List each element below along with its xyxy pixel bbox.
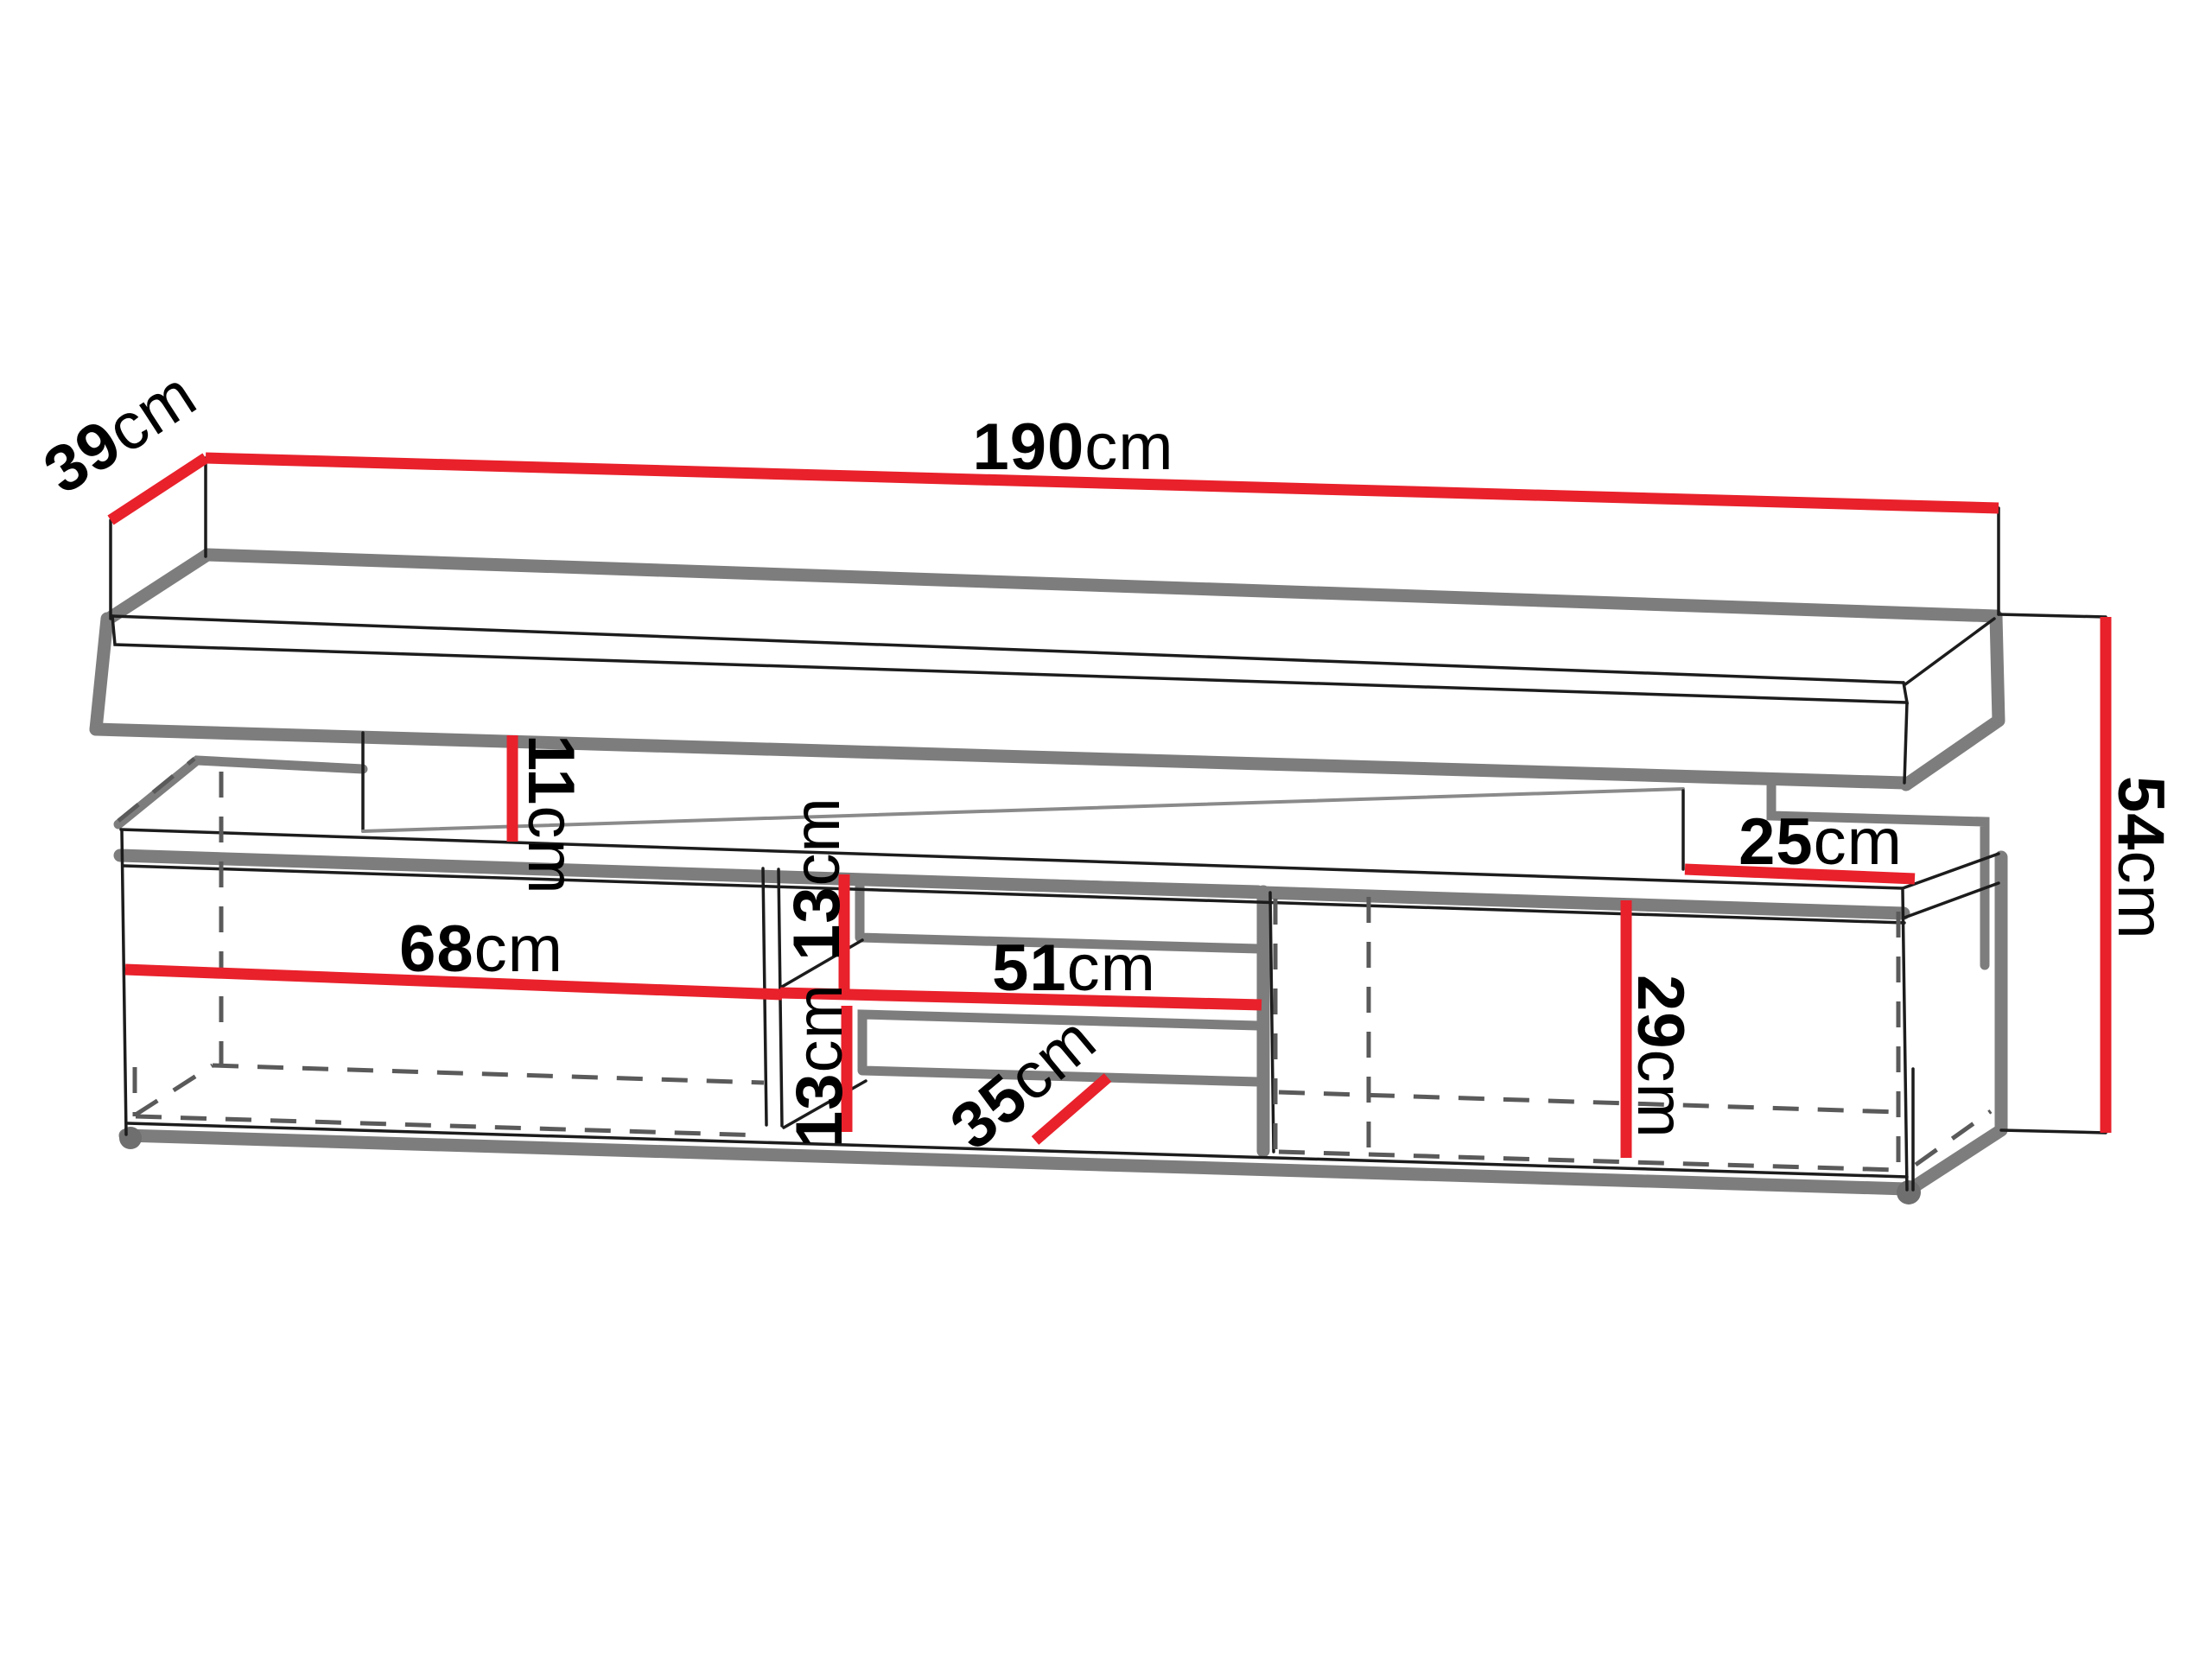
top-unit-back-edge <box>207 555 1996 616</box>
technical-drawing-page: 190cm 39cm 11cm 54cm 25cm 68cm 13cm 13cm… <box>0 0 2212 1659</box>
right-divider-front-edge <box>1270 893 1274 1152</box>
top-unit-right-face-front-edge <box>1904 702 1907 783</box>
top-unit-left-edge <box>96 619 107 729</box>
top-unit-top-left-edge <box>111 555 207 617</box>
hidden-right-bottom-back-edge <box>1279 1092 1897 1112</box>
hidden-left-bottom-diagonal <box>136 1065 213 1115</box>
cabinet-left-front-edge <box>122 831 126 1135</box>
label-cabinet-top-depth: 25cm <box>1738 805 1903 879</box>
label-recess-height: 11cm <box>514 734 588 895</box>
label-shelf-depth: 39cm <box>31 357 209 508</box>
label-niche-depth: 35cm <box>937 1002 1109 1164</box>
label-right-compartment-height: 29cm <box>1624 975 1697 1139</box>
label-total-width: 190cm <box>972 410 1173 484</box>
furniture-dimension-diagram: 190cm 39cm 11cm 54cm 25cm 68cm 13cm 13cm… <box>0 0 2212 1659</box>
top-unit-bottom-edge <box>96 729 1904 783</box>
hidden-left-bottom-back-edge <box>213 1065 764 1083</box>
label-center-niche-width: 51cm <box>992 931 1156 1005</box>
left-foot <box>119 1127 142 1149</box>
cabinet-top-board-bottom-edge <box>124 866 1904 923</box>
height-extension-bottom <box>2001 1130 2106 1133</box>
top-unit-right-edge <box>1906 616 1999 785</box>
cabinet-right-front-edge <box>1903 890 1907 1190</box>
top-unit-front-strip <box>112 616 1907 702</box>
right-foot <box>1897 1180 1921 1205</box>
top-unit-top-right-inner-edge <box>1905 619 1994 684</box>
label-upper-niche-height: 13cm <box>780 797 854 961</box>
height-extension-top <box>1999 614 2106 617</box>
label-left-compartment-width: 68cm <box>399 912 563 986</box>
label-total-height: 54cm <box>2104 776 2177 940</box>
label-lower-niche-height: 13cm <box>783 983 856 1147</box>
